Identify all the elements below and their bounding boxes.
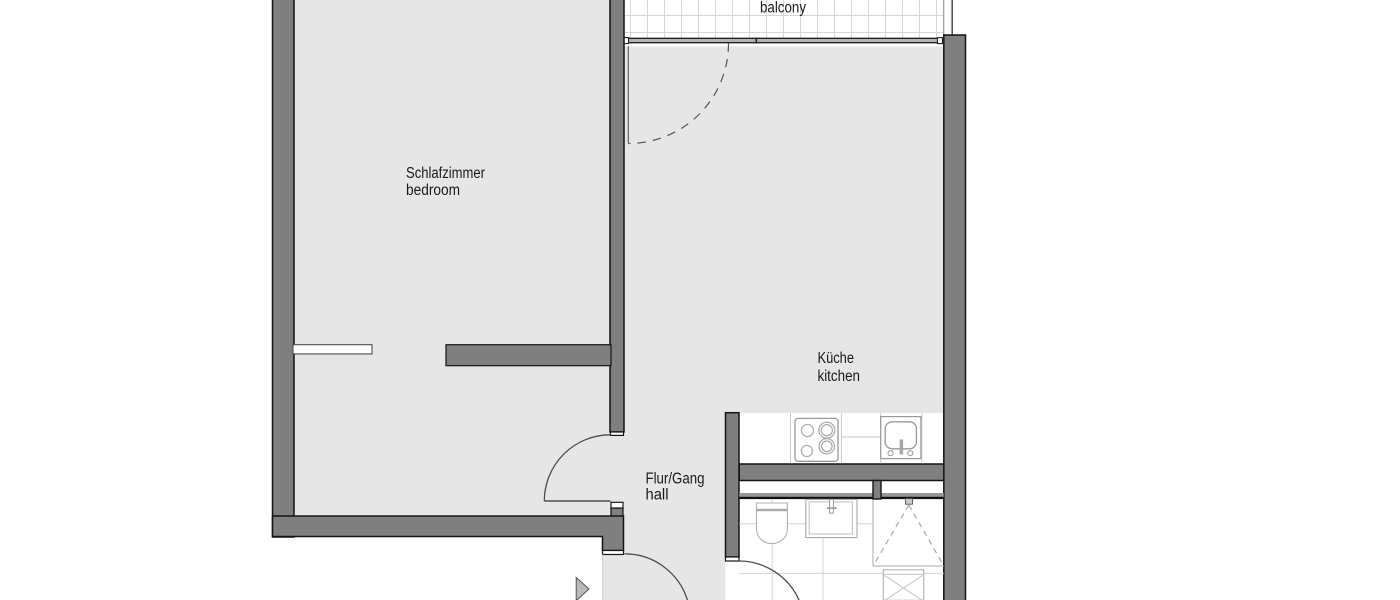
svg-text:bedroom: bedroom <box>406 182 460 199</box>
svg-text:kitchen: kitchen <box>818 368 861 385</box>
svg-text:Schlafzimmer: Schlafzimmer <box>406 165 485 182</box>
svg-text:Küche: Küche <box>818 350 855 367</box>
svg-text:hall: hall <box>646 487 669 504</box>
svg-text:balcony: balcony <box>760 0 806 17</box>
svg-text:Flur/Gang: Flur/Gang <box>646 471 705 488</box>
